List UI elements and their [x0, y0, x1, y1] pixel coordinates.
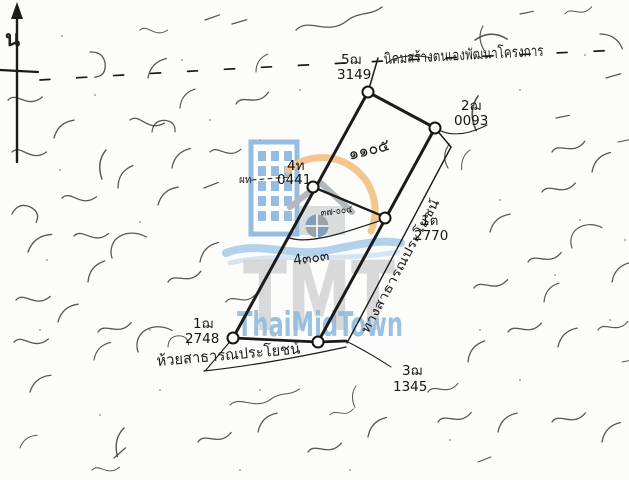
- boundary-post-northeast: [430, 123, 441, 134]
- settlement-boundary: นิคมสร้างตนเองพัฒนาโครงการ: [40, 42, 622, 80]
- boundary-post-middle-right: [380, 213, 391, 224]
- parcel-top-edge: [368, 92, 435, 128]
- marker-label-southwest: 1ฌ 2748: [185, 316, 219, 347]
- marker-label-northeast: 2ฌ 0093: [454, 98, 488, 129]
- marker-label-south: 3ฌ 1345: [393, 363, 427, 395]
- svg-text:3149: 3149: [337, 67, 371, 83]
- svg-text:0093: 0093: [454, 113, 488, 129]
- svg-text:1ฌ: 1ฌ: [193, 316, 213, 332]
- svg-text:1345: 1345: [393, 379, 427, 395]
- svg-text:3ฌ: 3ฌ: [402, 363, 422, 379]
- north-arrowhead: [11, 2, 23, 19]
- watermark-building-icon: [251, 142, 297, 234]
- svg-text:0441: 0441: [277, 172, 311, 188]
- marker-label-top: 5ฌ 3149: [337, 52, 371, 83]
- survey-sketch-canvas: TMT ThaiMidTown น นิคมสร้างตนเองพัฒนาโคร…: [0, 0, 629, 480]
- north-indicator: น: [0, 2, 38, 162]
- parcel-number-upper: ๑๑๐๕: [346, 135, 392, 165]
- survey-sketch-page: TMT ThaiMidTown น นิคมสร้างตนเองพัฒนาโคร…: [0, 0, 629, 480]
- marker-label-middle-left-small: ผท: [239, 175, 251, 186]
- svg-text:2ฌ: 2ฌ: [461, 98, 481, 114]
- boundary-post-top: [363, 87, 374, 98]
- svg-text:2748: 2748: [185, 331, 219, 347]
- parcel-number-middle: ๓๗-๐๐๔: [320, 203, 353, 219]
- svg-text:5ฌ: 5ฌ: [341, 52, 361, 68]
- boundary-post-south: [313, 337, 324, 348]
- settlement-boundary-label: นิคมสร้างตนเองพัฒนาโครงการ: [383, 42, 544, 68]
- paper-texture-marks: [8, 7, 629, 472]
- boundary-post-southwest: [228, 333, 239, 344]
- north-label: น: [5, 27, 20, 52]
